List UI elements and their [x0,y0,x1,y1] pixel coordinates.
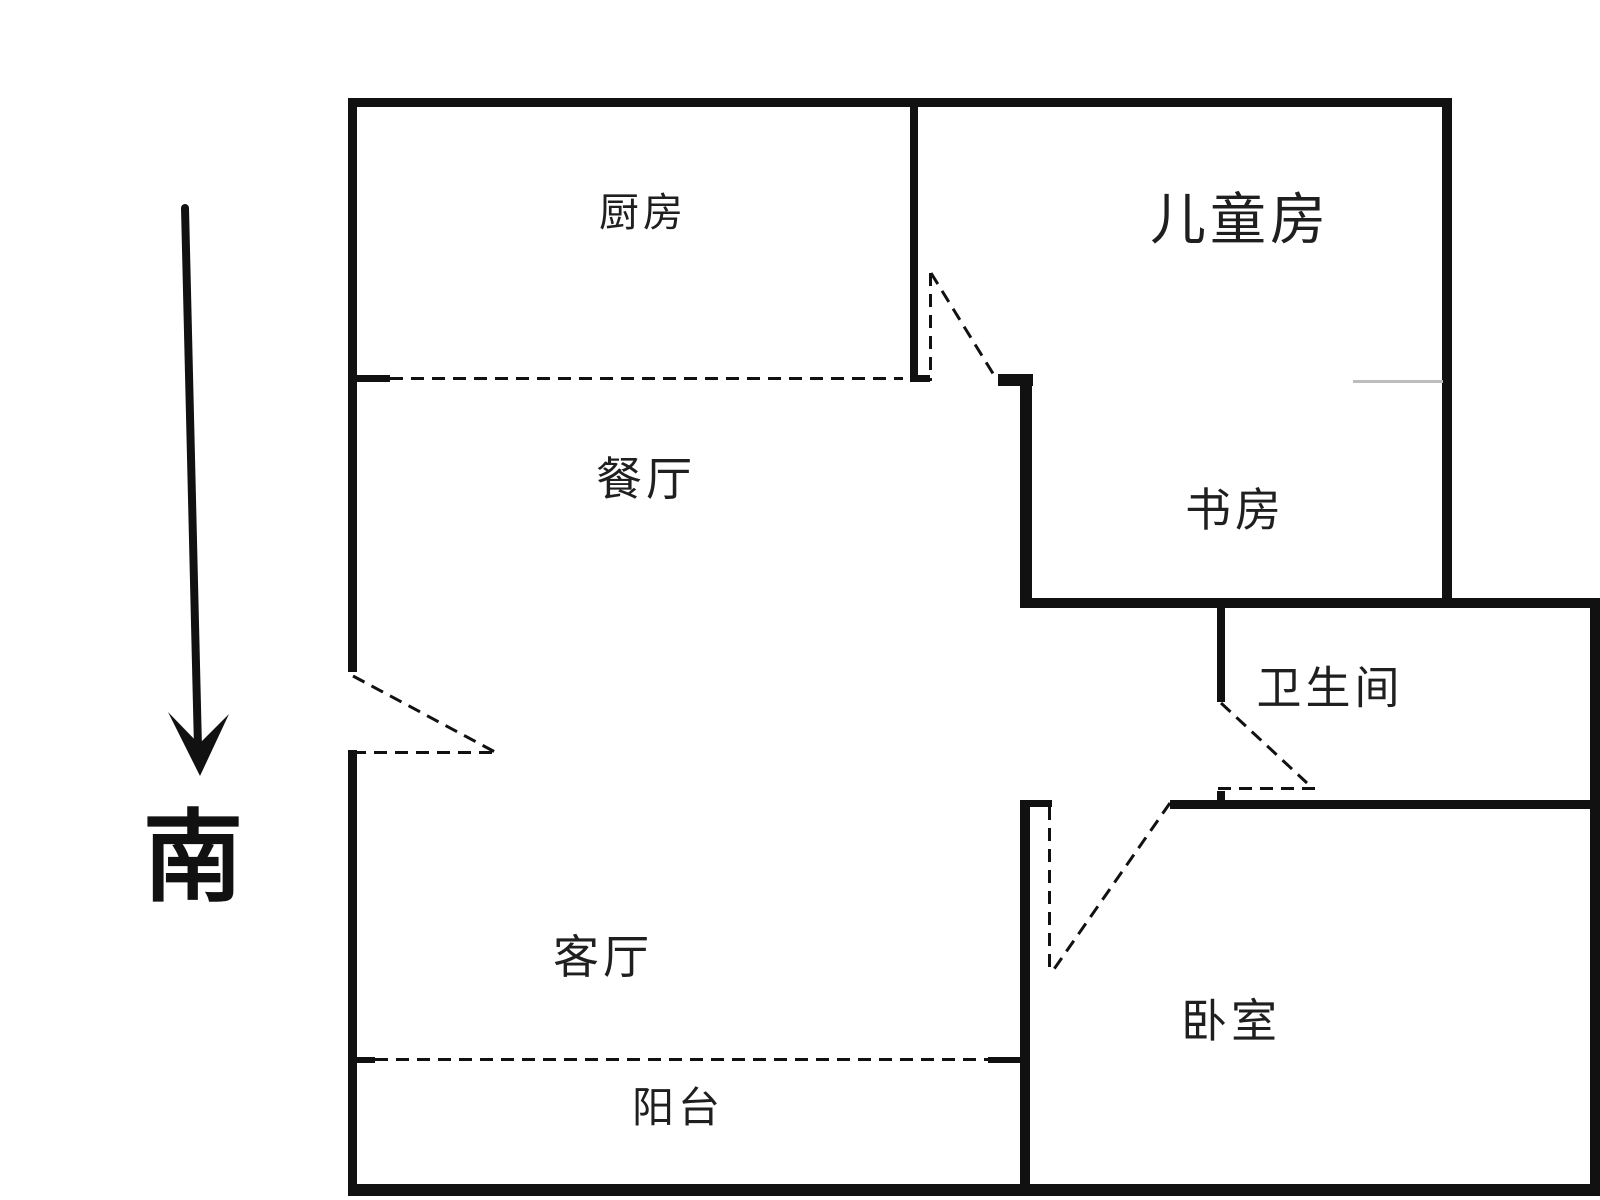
wall-left-wall-lower [348,750,357,1193]
wall-children-right-wall [1442,98,1452,607]
wall-bottom-wall [348,1184,1600,1196]
room-label-balcony: 阳台 [632,1087,724,1129]
kitchen-window-line [390,377,903,380]
children-study-boundary [1353,380,1443,383]
wall-balcony-left-stub [348,1057,375,1063]
wall-divider-foot-stub [910,375,930,382]
room-label-children-room: 儿童房 [1150,192,1330,248]
room-label-dining-room: 餐厅 [596,456,696,502]
bathroom-door-leaf [1218,787,1317,790]
wall-kitchen-window-left-stub [348,375,390,382]
wall-left-wall-upper [348,98,357,672]
room-label-living-room: 客厅 [553,934,653,980]
south-arrow-shaft [185,208,198,748]
children-door-leaf [929,273,932,381]
balcony-window-line [375,1058,988,1061]
wall-kitchen-children-divider [910,107,918,381]
children-door-swing [931,273,997,380]
entry-door-swing [353,676,495,752]
wall-bedroom-top-wall [1170,800,1600,809]
room-label-bedroom: 卧室 [1181,998,1281,1044]
south-compass-label: 南 [143,808,243,908]
wall-balcony-right-stub [988,1057,1020,1063]
wall-study-left-wall [1020,378,1032,607]
room-label-kitchen: 厨房 [599,193,687,233]
wall-top-wall [348,98,1452,107]
bathroom-door-swing [1221,703,1307,783]
entry-door-leaf [353,751,497,754]
room-label-bathroom: 卫生间 [1256,666,1403,711]
floor-plan: 厨房儿童房餐厅书房卫生间客厅卧室阳台南 [0,0,1600,1200]
room-label-study: 书房 [1185,487,1285,533]
bedroom-door-swing [1052,803,1170,972]
wall-right-outer-wall [1590,598,1600,1196]
wall-bathroom-top-wall [1020,598,1600,608]
wall-bathroom-left-wall [1217,608,1225,702]
wall-bedroom-left-wall [1020,800,1030,1196]
bedroom-door-leaf [1048,807,1051,973]
